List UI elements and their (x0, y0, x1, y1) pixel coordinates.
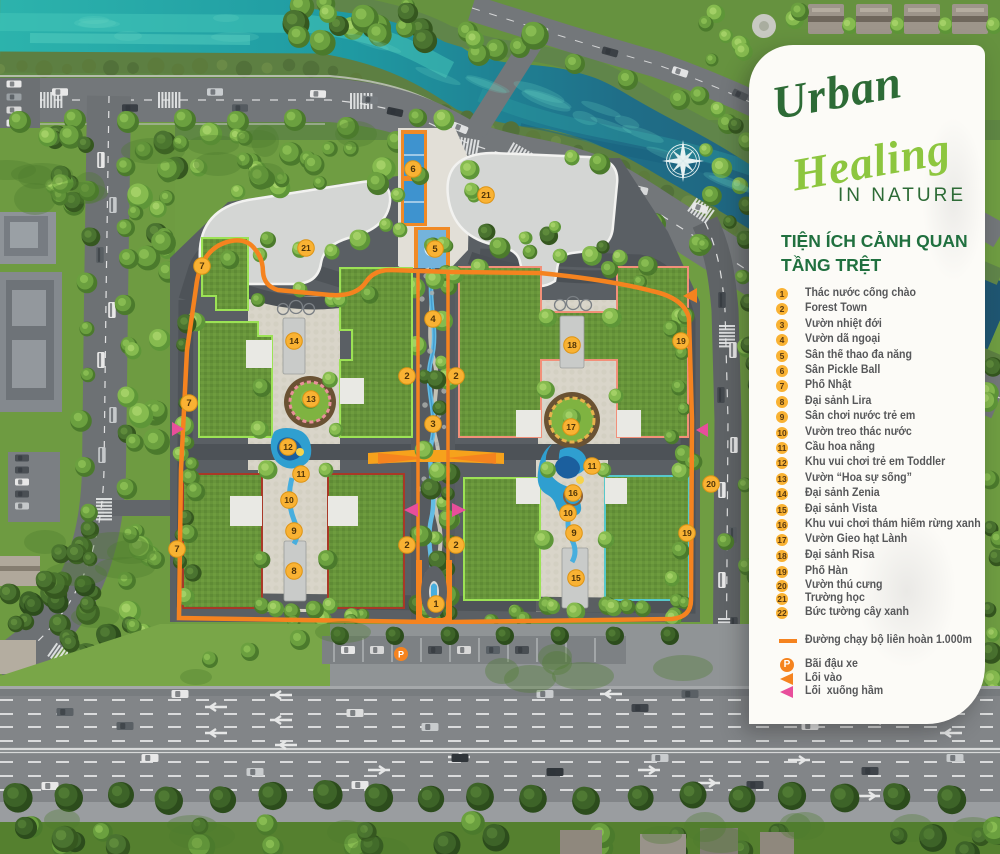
svg-text:4: 4 (430, 314, 436, 325)
svg-text:2: 2 (453, 371, 458, 382)
svg-text:12: 12 (283, 442, 293, 452)
svg-text:2: 2 (453, 540, 458, 551)
svg-text:17: 17 (566, 422, 576, 432)
svg-text:2: 2 (404, 371, 409, 382)
svg-text:16: 16 (568, 488, 578, 498)
svg-text:19: 19 (676, 336, 686, 346)
svg-text:5: 5 (432, 244, 438, 255)
svg-text:14: 14 (289, 336, 299, 346)
svg-text:2: 2 (404, 540, 409, 551)
svg-text:21: 21 (481, 190, 491, 200)
svg-text:3: 3 (430, 419, 435, 430)
svg-text:18: 18 (567, 340, 577, 350)
svg-text:P: P (398, 649, 404, 659)
svg-text:7: 7 (199, 261, 204, 272)
svg-text:10: 10 (563, 508, 573, 518)
svg-text:11: 11 (587, 461, 596, 471)
svg-text:10: 10 (284, 495, 294, 505)
svg-text:9: 9 (571, 528, 576, 539)
svg-text:15: 15 (571, 573, 581, 583)
svg-text:20: 20 (706, 479, 716, 489)
svg-text:19: 19 (682, 528, 692, 538)
svg-text:8: 8 (291, 566, 296, 577)
svg-text:13: 13 (306, 394, 316, 404)
svg-text:6: 6 (410, 164, 415, 175)
svg-text:9: 9 (291, 526, 296, 537)
svg-text:7: 7 (174, 544, 179, 555)
svg-text:11: 11 (296, 469, 305, 479)
svg-text:21: 21 (301, 243, 311, 253)
svg-text:1: 1 (433, 599, 439, 610)
svg-text:7: 7 (186, 398, 191, 409)
